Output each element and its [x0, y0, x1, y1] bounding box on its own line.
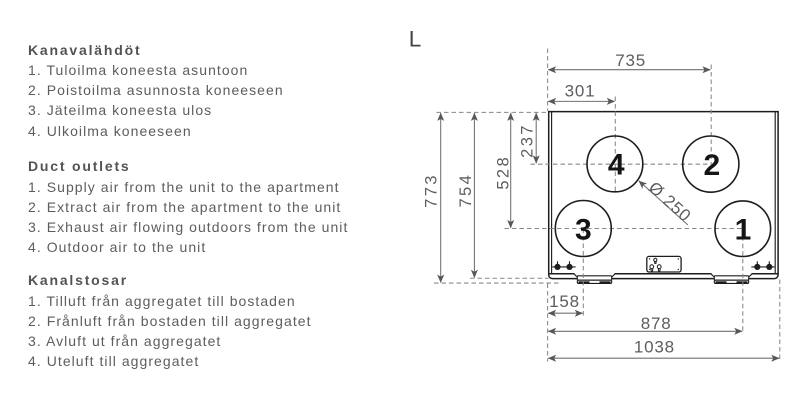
svg-text:735: 735 — [615, 51, 646, 70]
svg-text:1: 1 — [735, 214, 752, 247]
svg-text:878: 878 — [641, 314, 672, 333]
svg-text:1038: 1038 — [634, 338, 675, 357]
svg-text:L: L — [409, 26, 422, 51]
svg-text:528: 528 — [494, 155, 512, 190]
svg-text:301: 301 — [565, 81, 596, 100]
svg-text:158: 158 — [549, 292, 580, 311]
svg-text:2: 2 — [703, 149, 720, 182]
svg-text:773: 773 — [422, 173, 440, 208]
svg-text:754: 754 — [457, 173, 475, 208]
svg-text:237: 237 — [519, 123, 537, 158]
svg-text:4: 4 — [608, 149, 625, 182]
svg-text:3: 3 — [575, 214, 592, 247]
